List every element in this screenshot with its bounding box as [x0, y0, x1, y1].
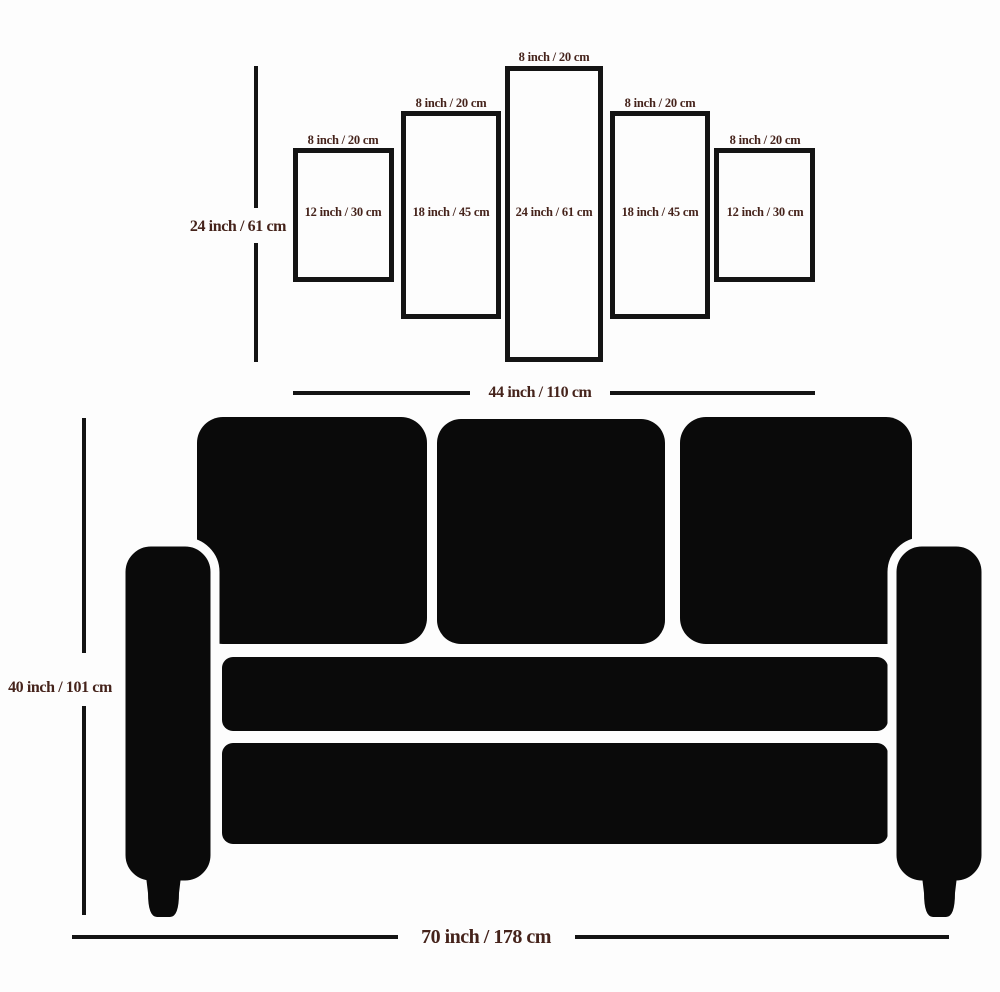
- sofa-width-line-right: [575, 935, 949, 939]
- sofa-width-label: 70 inch / 178 cm: [421, 927, 551, 947]
- sofa-seat-rail: [222, 657, 888, 731]
- sofa-foot-left: [145, 868, 182, 917]
- sofa-arm-right: [892, 542, 986, 885]
- sofa-width-line-left: [72, 935, 398, 939]
- sofa-illustration: [0, 0, 1000, 992]
- sofa-foot-right: [921, 868, 958, 917]
- sofa-front-rail: [222, 743, 888, 844]
- sofa-height-line-top: [82, 418, 86, 653]
- sofa-height-label: 40 inch / 101 cm: [8, 680, 112, 696]
- sofa-height-line-bottom: [82, 706, 86, 915]
- size-guide-diagram: 8 inch / 20 cm 8 inch / 20 cm 8 inch / 2…: [0, 0, 1000, 992]
- sofa-back-cushion-left: [197, 417, 427, 644]
- sofa-back-cushion-middle: [437, 419, 665, 644]
- sofa-arm-left: [121, 542, 215, 885]
- sofa-back-cushion-right: [680, 417, 912, 644]
